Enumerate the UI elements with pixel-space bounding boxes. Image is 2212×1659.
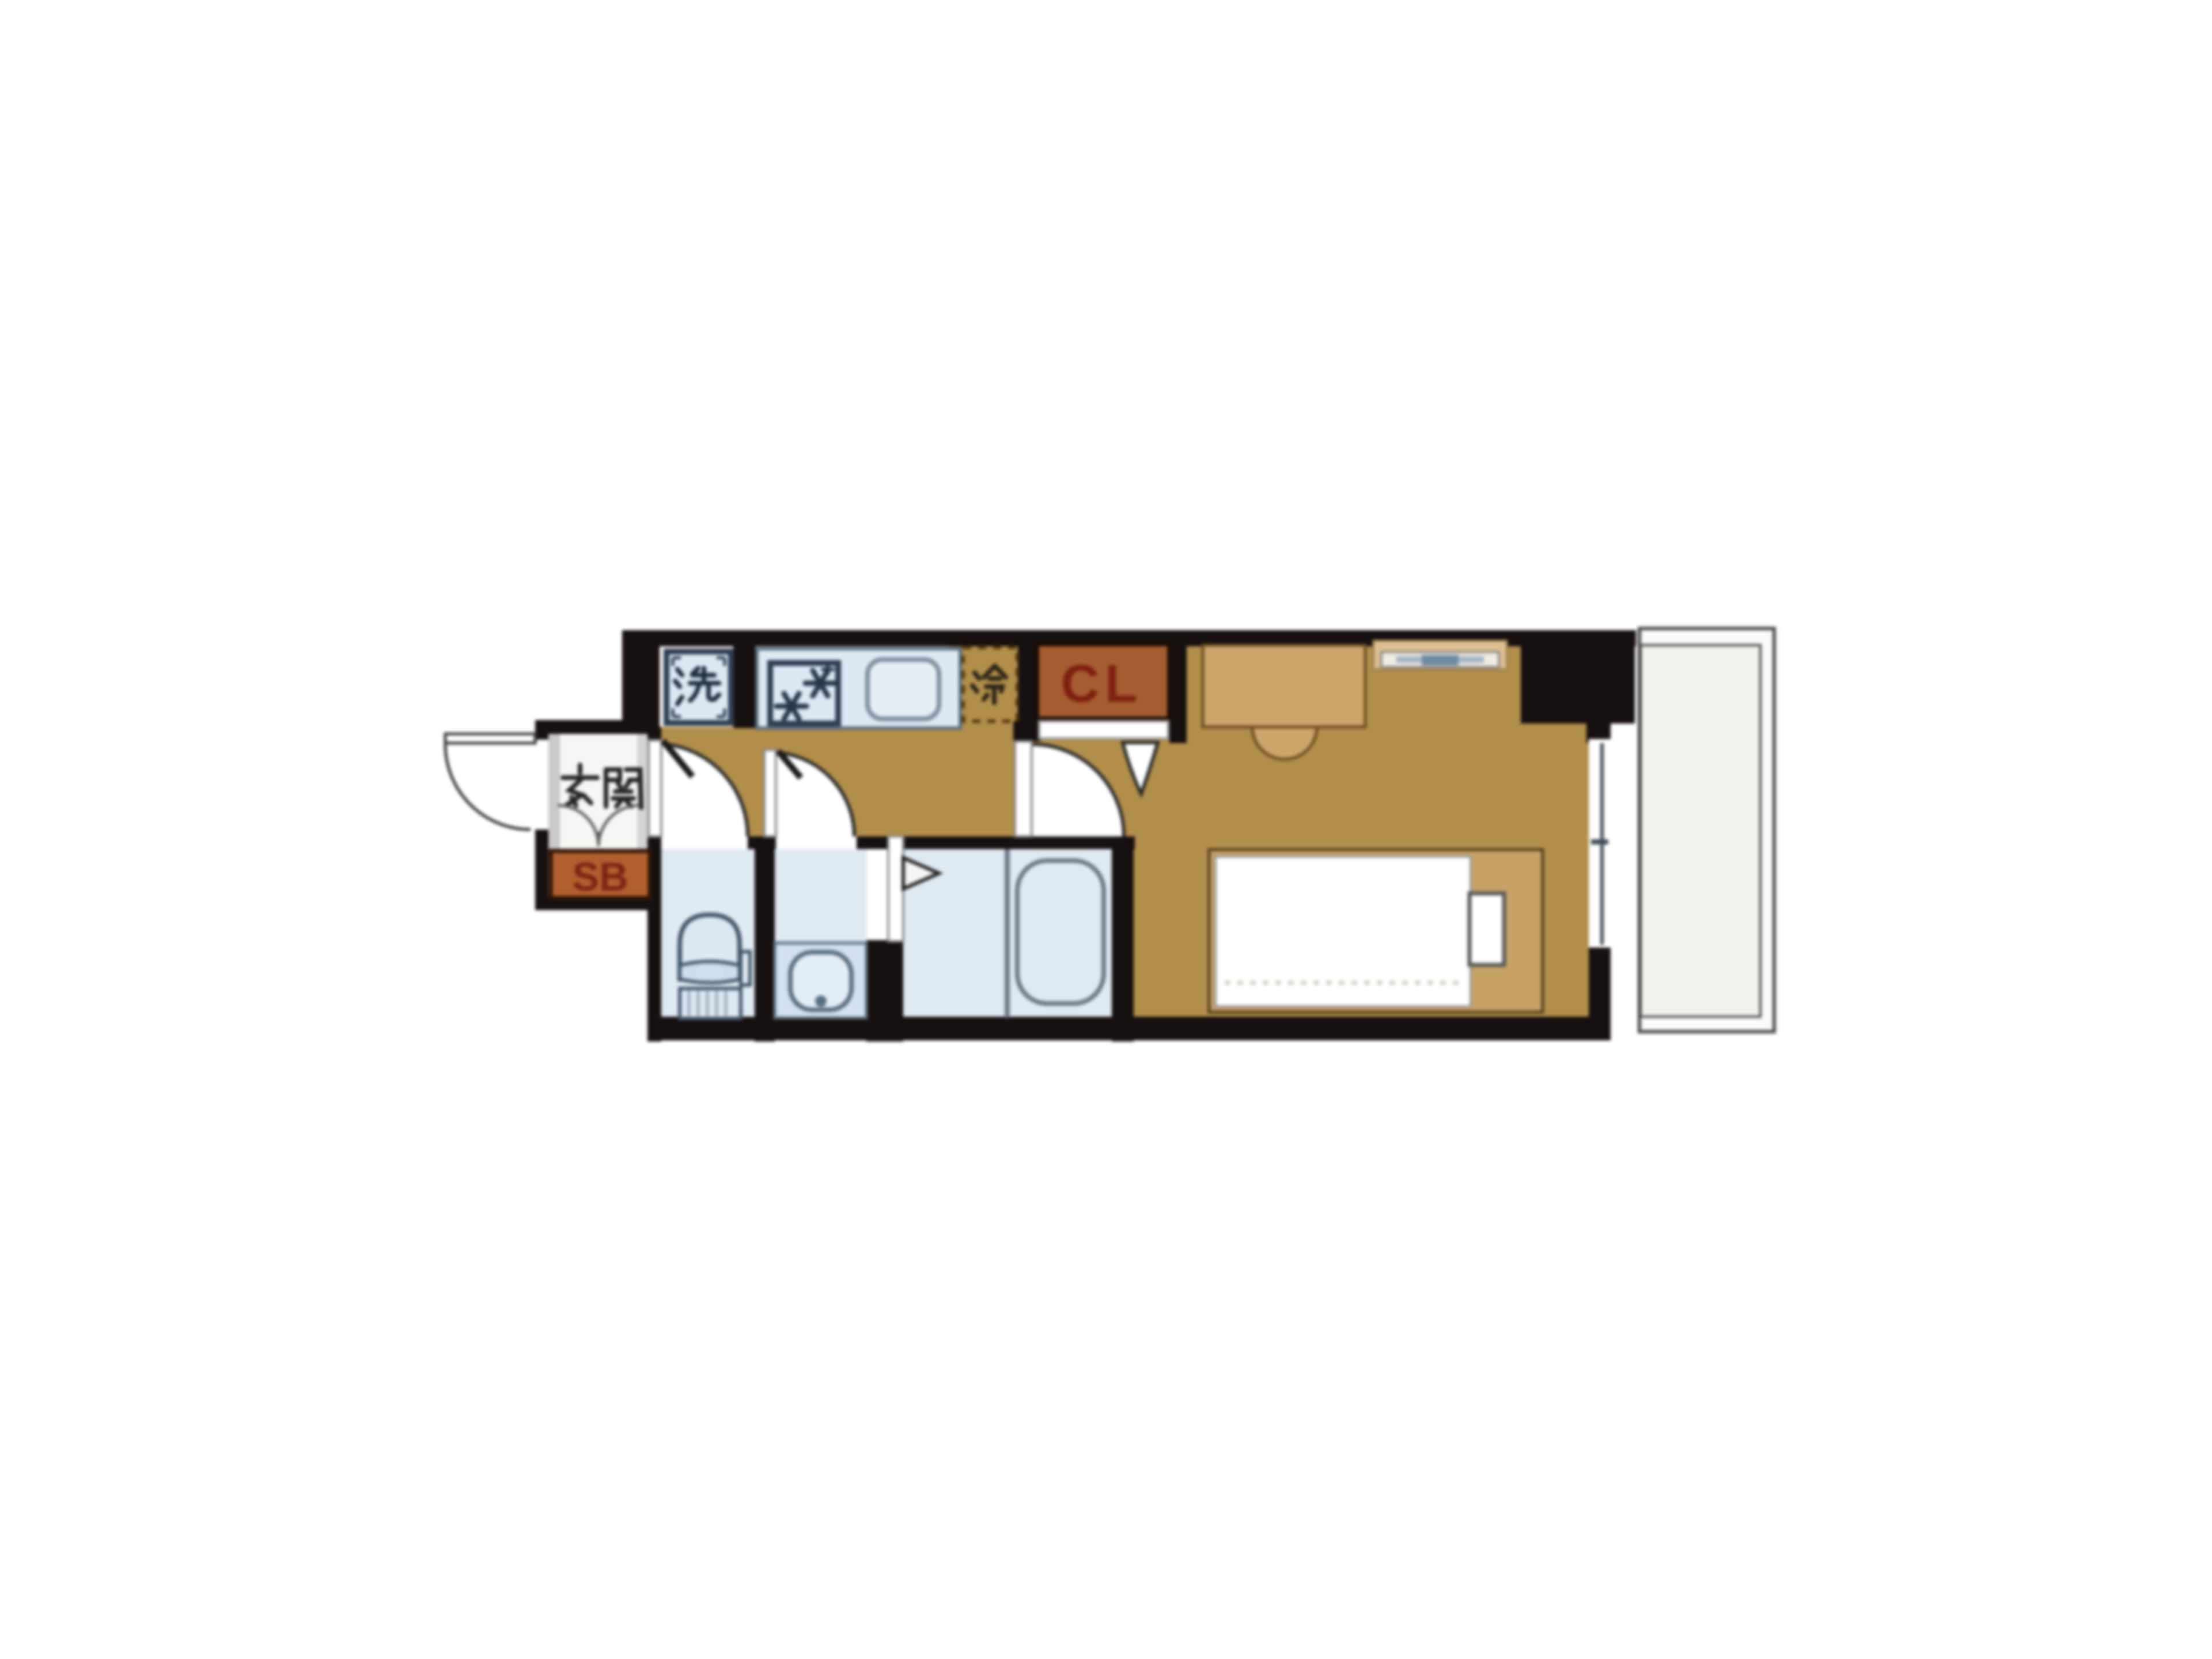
svg-text:CL: CL (1061, 654, 1143, 713)
svg-text:SB: SB (572, 854, 628, 899)
